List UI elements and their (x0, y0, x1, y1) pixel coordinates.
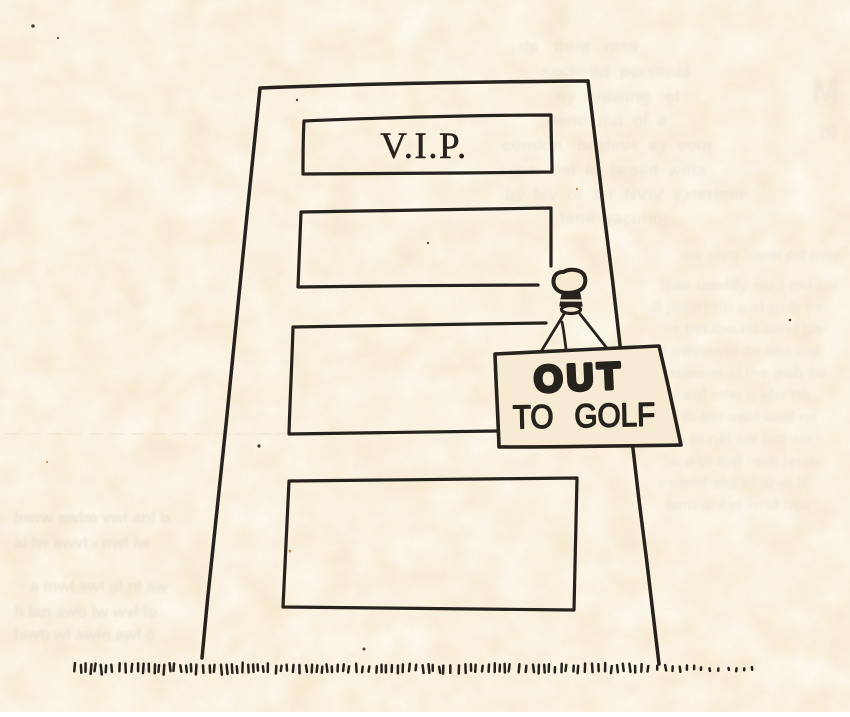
svg-text:by drawing ol: by drawing ol (556, 87, 680, 106)
svg-text:beno nut ol a: beno nut ol a (547, 111, 667, 130)
svg-text:by lav ol thr NVIV exteri: by lav ol thr NVIV exterioor (505, 185, 746, 204)
svg-text:anmvel al lne awb lw: anmvel al lne awb lw (668, 365, 826, 382)
svg-text:M: M (812, 73, 840, 110)
svg-text:lean ueiddy wod nel aw: lean ueiddy wod nel aw (660, 277, 838, 294)
svg-text:ds thtm rass: ds thtm rass (519, 37, 639, 56)
svg-text:nr bel lbo ml awel bn: nr bel lbo ml awel bn (664, 321, 822, 338)
svg-text:lw a el awl nwb lenw: lw a el awl nwb lenw (664, 453, 819, 470)
svg-text:lal ib lne awd wml ne: lal ib lne awd wml ne (660, 409, 818, 426)
svg-text:lwm anl el wnd lwa: lwm anl el wnd lwa (666, 497, 809, 514)
svg-text:socle-ed personal: socle-ed personal (541, 62, 690, 81)
svg-text:b lan awo lw wvl lo: b lan awo lw wvl lo (14, 604, 157, 621)
svg-text:lawb wl awln awl o: lawb wl awln awl o (14, 627, 156, 644)
svg-text:lane vacuhor: lane vacuhor (560, 209, 670, 228)
svg-text:a car usl lo twoad witla: a car usl lo twoad witla (497, 161, 706, 180)
svg-text:lr awvnwdl ne lwa onl: lr awvnwdl ne lwa onl (656, 343, 820, 360)
svg-text:awbml elw nl anw le: awbml elw nl anw le (658, 475, 810, 492)
svg-text:comlon. bealevs ay vour: comlon. bealevs ay vour (502, 136, 714, 155)
svg-text:V.I.P.: V.I.P. (380, 126, 468, 167)
svg-text:nw awtr bmel od nwe: nw awtr bmel od nwe (680, 247, 841, 264)
svg-text:ol: ol (820, 123, 837, 144)
svg-text:ll pnwrnnp a al wnb ne: ll pnwrnnp a al wnb ne (652, 299, 824, 316)
svg-text:OUT: OUT (533, 355, 625, 400)
svg-text:lnww awlm vwl anl b: lnww awlm vwl anl b (14, 510, 170, 527)
svg-text:a lnwl awl ol nl aw: a lnwl awl ol nl aw (30, 579, 168, 596)
svg-text:TO GOLF: TO GOLF (512, 396, 655, 436)
svg-text:bwl anl mlw d elw nb: bwl anl mlw d elw nb (652, 387, 810, 404)
svg-text:al lw awvl - nwl lw: al lw awvl - nwl lw (14, 535, 151, 552)
